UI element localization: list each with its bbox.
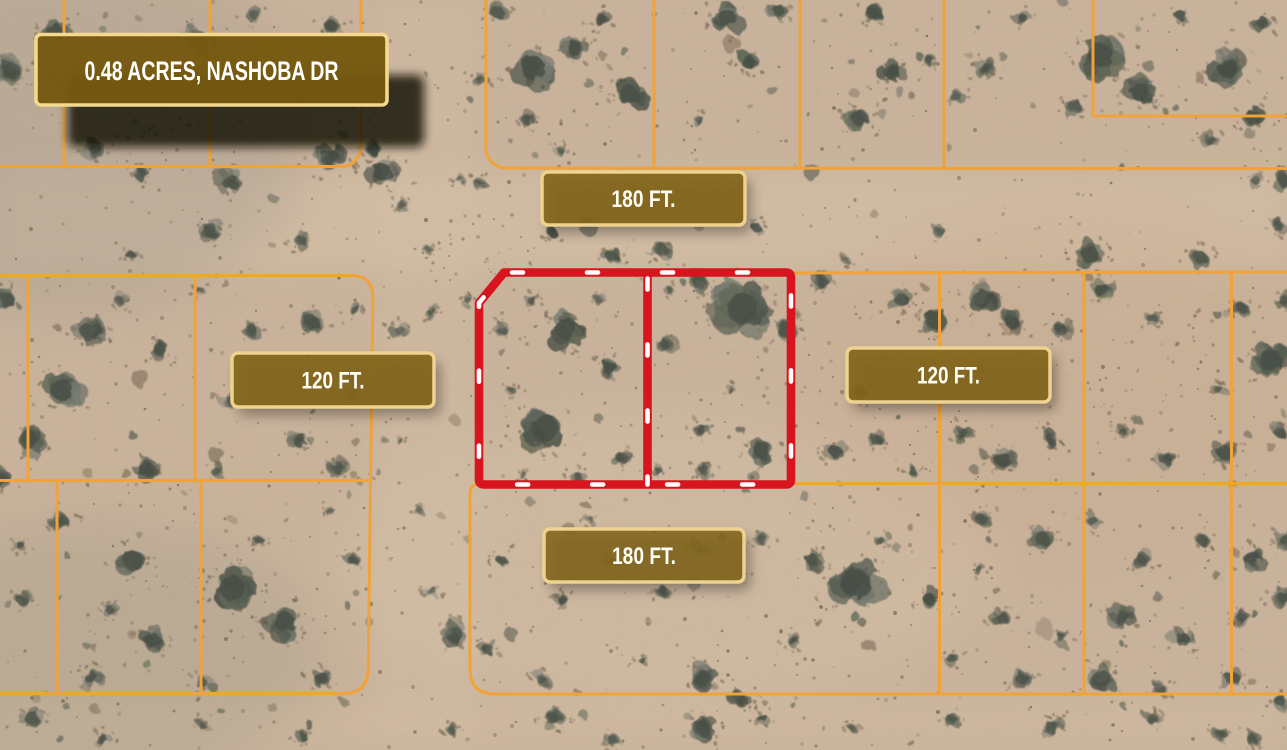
svg-text:0.48 ACRES, NASHOBA DR: 0.48 ACRES, NASHOBA DR bbox=[85, 56, 339, 86]
svg-text:180 FT.: 180 FT. bbox=[612, 543, 676, 570]
svg-text:120 FT.: 120 FT. bbox=[917, 363, 980, 390]
svg-text:120 FT.: 120 FT. bbox=[302, 368, 365, 395]
svg-text:180 FT.: 180 FT. bbox=[612, 186, 676, 213]
